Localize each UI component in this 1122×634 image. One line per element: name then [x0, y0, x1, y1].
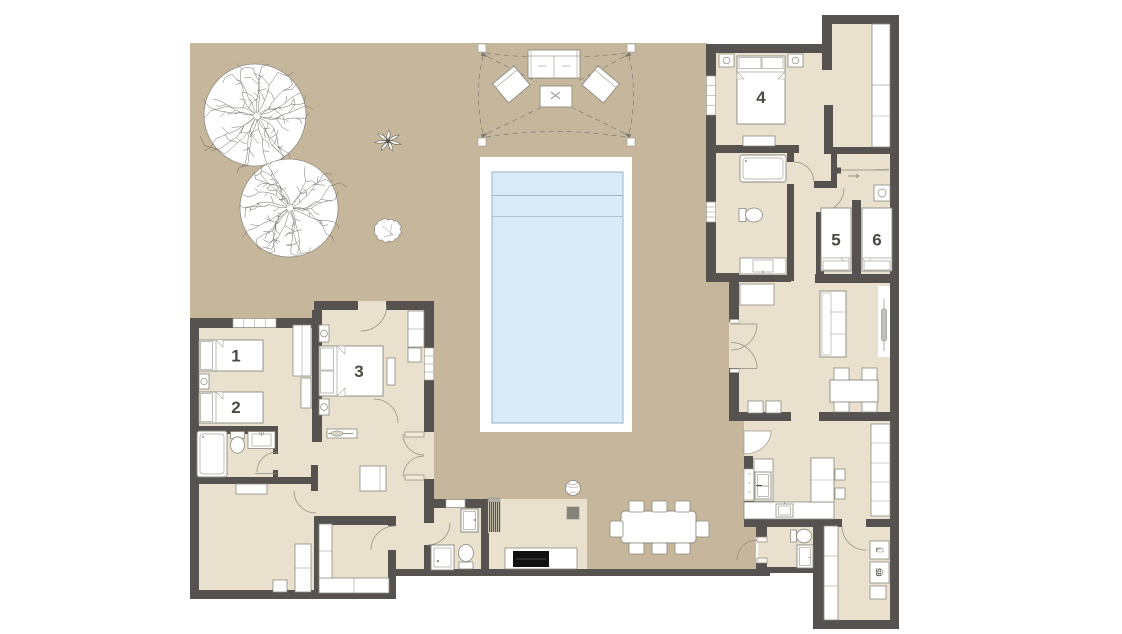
svg-text:5: 5: [831, 231, 840, 250]
svg-text:L: L: [874, 548, 881, 552]
svg-text:4: 4: [756, 88, 766, 107]
svg-text:1: 1: [231, 347, 240, 366]
svg-text:6: 6: [872, 231, 881, 250]
svg-text:S8: S8: [874, 568, 881, 577]
svg-text:3: 3: [354, 362, 363, 381]
svg-text:2: 2: [231, 398, 240, 417]
